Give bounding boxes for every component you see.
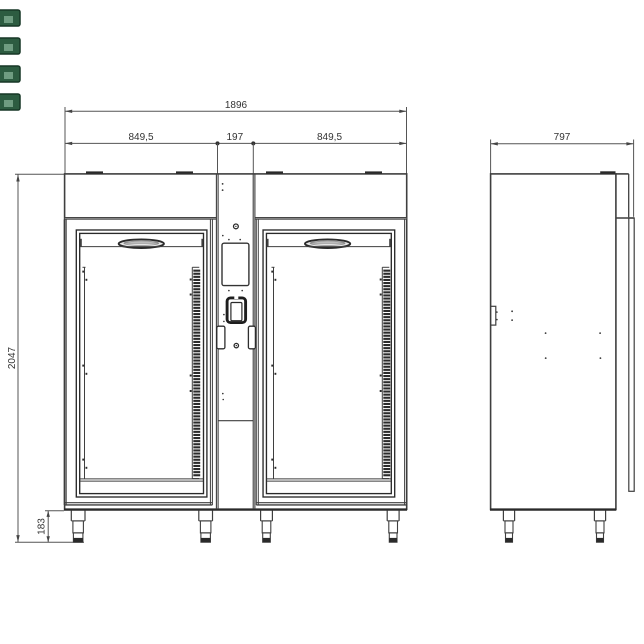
svg-text:1896: 1896: [225, 100, 248, 111]
svg-text:849,5: 849,5: [128, 132, 153, 143]
svg-text:797: 797: [554, 132, 571, 143]
svg-text:197: 197: [226, 132, 243, 143]
svg-text:2047: 2047: [7, 346, 18, 369]
svg-text:849,5: 849,5: [317, 132, 342, 143]
svg-text:183: 183: [36, 518, 47, 535]
